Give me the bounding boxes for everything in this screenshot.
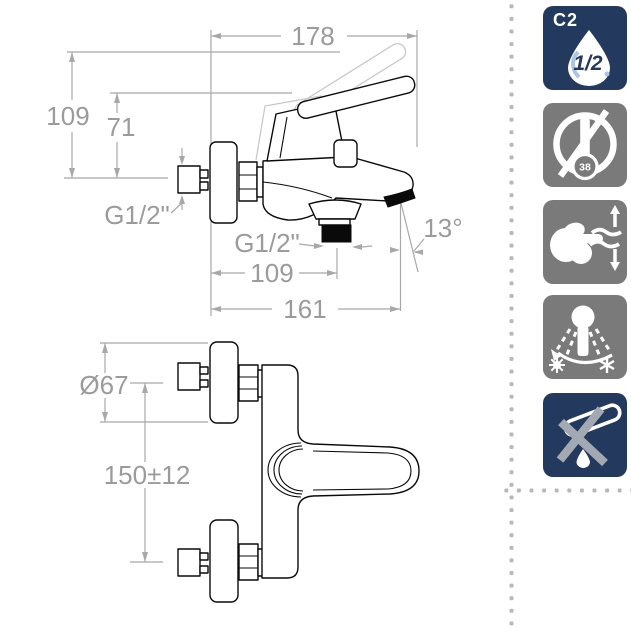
horizontal-dotted-separator — [500, 488, 631, 493]
dim-escutcheon-diameter: Ø67 — [79, 370, 128, 400]
no-thermostatic-limit-icon: 38 — [543, 103, 627, 187]
dim-projection-total: 178 — [291, 21, 334, 51]
shower-hot-cold-icon — [543, 295, 627, 379]
dim-height-handle: 109 — [46, 101, 89, 131]
crossed-thermometer-icon: 38 — [543, 103, 627, 187]
diverter-knob — [334, 140, 357, 167]
anti-drip-spout-icon — [543, 393, 627, 477]
svg-text:1/2: 1/2 — [573, 52, 603, 75]
single-lever-flow-icon — [543, 200, 627, 284]
hot-gear-glyph — [549, 357, 565, 373]
dim-inlet-thread: G1/2" — [104, 200, 170, 230]
technical-drawing: 178 109 71 G1/2" — [0, 0, 511, 631]
shower-outlet-collar — [309, 200, 361, 219]
dim-spout-angle: 13° — [423, 213, 462, 243]
water-drop-icon: 1/2 — [543, 6, 627, 90]
svg-text:38: 38 — [579, 162, 591, 174]
plan-view-body — [178, 342, 419, 602]
vertical-dotted-separator — [509, 0, 514, 631]
dim-spout-projection: 161 — [283, 294, 326, 324]
spec-sheet: 178 109 71 G1/2" — [0, 0, 631, 631]
mixer-bar-and-handle — [262, 365, 419, 578]
hand-flow-icon — [543, 200, 627, 284]
dim-height-lever: 71 — [107, 112, 136, 142]
flow-class-c2-half-inch-icon: C2 1/2 — [543, 6, 627, 90]
dim-inlet-centres: 150±12 — [104, 460, 191, 490]
temperature-range-shower-icon — [543, 295, 627, 379]
crossed-spout-icon — [543, 393, 627, 477]
shower-outlet-thread — [322, 225, 351, 242]
dim-outlet-distance: 109 — [250, 258, 293, 288]
dim-outlet-thread: G1/2" — [234, 228, 300, 258]
